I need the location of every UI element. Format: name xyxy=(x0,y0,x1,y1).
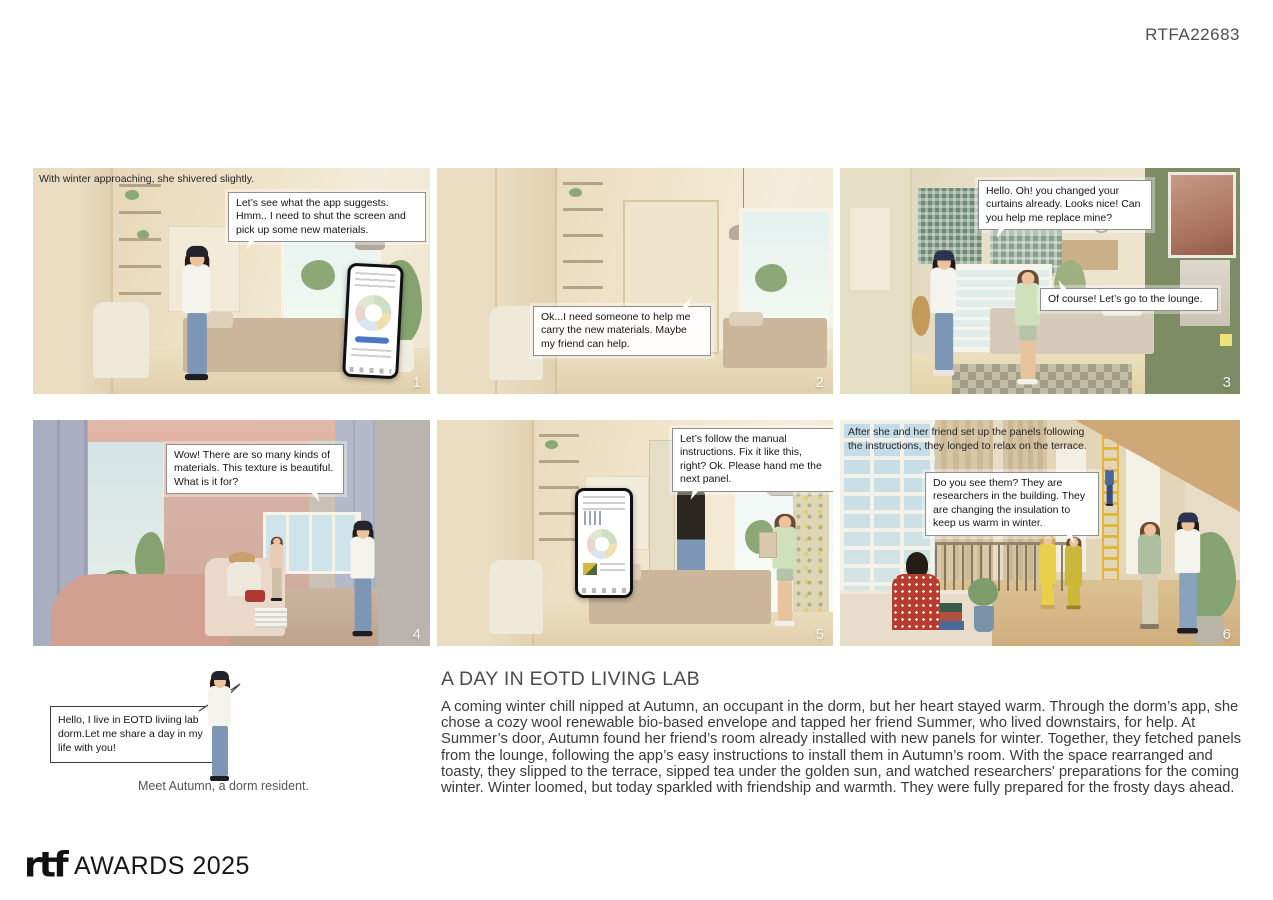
figure-cap xyxy=(211,671,229,680)
figure-cap xyxy=(1178,513,1198,523)
figure-head xyxy=(273,538,280,545)
figure-legs xyxy=(272,568,282,598)
wall-texture-panel xyxy=(850,208,890,290)
comic-panel-3: Hello. Oh! you changed your curtains alr… xyxy=(840,168,1240,394)
poster-photo xyxy=(1168,172,1236,258)
person-figure-autumn xyxy=(350,526,374,636)
panel-number: 6 xyxy=(1223,626,1231,643)
figure-shoes xyxy=(1040,605,1054,609)
story-title: A DAY IN EOTD LIVING LAB xyxy=(441,668,700,691)
person-green-top xyxy=(1138,524,1161,629)
concrete-wall-right xyxy=(375,420,430,646)
figure-cap xyxy=(186,246,208,257)
app-text-lines xyxy=(600,563,625,575)
panel-caption: After she and her friend set up the pane… xyxy=(848,426,1100,454)
app-nav-bar xyxy=(349,367,391,374)
person-figure-autumn xyxy=(930,256,956,376)
figure-legs xyxy=(354,579,371,632)
comic-panel-4: Wow! There are so many kinds of material… xyxy=(33,420,430,646)
figure-torso xyxy=(1138,534,1161,574)
figure-head xyxy=(214,676,226,688)
researcher-on-ladder xyxy=(1105,466,1114,506)
window-plant xyxy=(301,260,335,290)
figure-torso xyxy=(1039,544,1056,585)
figure-head xyxy=(1021,272,1034,285)
phone-mockup xyxy=(342,263,404,380)
phone-mockup xyxy=(575,488,633,598)
app-text-lines xyxy=(355,272,396,290)
speech-bubble: Let’s see what the app suggests. Hmm.. I… xyxy=(228,192,426,242)
figure-torso xyxy=(270,544,284,568)
red-cushion xyxy=(245,590,265,602)
figure-head xyxy=(1144,524,1156,536)
panel-caption: With winter approaching, she shivered sl… xyxy=(39,173,309,187)
intro-figure-autumn xyxy=(208,676,231,781)
figure-torso xyxy=(182,264,210,313)
rtf-logo: rtf xyxy=(24,846,66,885)
sticky-note xyxy=(1220,334,1232,346)
shelf-unit xyxy=(539,434,579,554)
figure-shoes xyxy=(1066,606,1080,610)
window-plant xyxy=(755,264,787,292)
plaid-woman-body xyxy=(892,574,940,630)
person-figure-autumn xyxy=(182,252,210,380)
panel-number: 4 xyxy=(413,626,421,643)
pillow xyxy=(729,312,763,326)
figure-head xyxy=(1107,466,1112,471)
figure-torso xyxy=(930,267,956,313)
figure-bare-legs xyxy=(777,581,792,621)
app-material-wheel xyxy=(587,529,617,559)
person-yellow-dress xyxy=(1039,536,1056,609)
figure-shoes xyxy=(775,621,795,626)
figure-legs xyxy=(1179,573,1197,628)
book-stack xyxy=(255,608,287,628)
shelf-plant xyxy=(545,440,558,449)
app-button xyxy=(355,336,389,344)
figure-head xyxy=(937,256,951,270)
figure-bare-legs xyxy=(1020,340,1035,379)
figure-shoes xyxy=(353,631,373,636)
person-figure-autumn xyxy=(1175,518,1200,634)
figure-cap xyxy=(353,521,372,530)
app-manual-diagram xyxy=(584,511,602,525)
chair xyxy=(93,302,149,378)
figure-torso xyxy=(1015,283,1040,326)
panel-number: 3 xyxy=(1223,374,1231,391)
window xyxy=(739,208,833,328)
figure-cap xyxy=(933,250,954,260)
figure-torso xyxy=(350,537,374,579)
shelf-unit xyxy=(119,184,161,306)
panel-number: 1 xyxy=(413,374,421,391)
app-text-lines xyxy=(351,348,391,360)
figure-legs xyxy=(934,313,952,370)
person-figure-background xyxy=(270,538,284,601)
speech-bubble: Let’s follow the manual instructions. Fi… xyxy=(672,428,833,492)
app-nav-bar xyxy=(582,588,626,593)
checkered-rug xyxy=(952,364,1132,394)
shelf-plant xyxy=(569,188,582,197)
figure-legs xyxy=(1142,574,1158,624)
figure-shoes xyxy=(933,370,955,376)
figure-legs xyxy=(1068,586,1080,606)
figure-head xyxy=(1181,518,1194,531)
speech-bubble: Do you see them? They are researchers in… xyxy=(925,472,1099,536)
figure-shoes xyxy=(1140,624,1159,629)
carried-panel xyxy=(759,532,777,558)
speech-bubble: Wow! There are so many kinds of material… xyxy=(166,444,344,494)
guitar xyxy=(912,296,930,336)
speech-bubble-reply: Of course! Let’s go to the lounge. xyxy=(1040,288,1218,311)
figure-head xyxy=(1043,536,1052,545)
project-code: RTFA22683 xyxy=(1145,25,1240,45)
figure-torso xyxy=(208,686,231,726)
figure-legs xyxy=(1106,485,1112,504)
phone-screen xyxy=(345,266,401,376)
chair xyxy=(489,560,543,634)
comic-panel-1: With winter approaching, she shivered sl… xyxy=(33,168,430,394)
comic-panel-6: After she and her friend set up the pane… xyxy=(840,420,1240,646)
figure-torso xyxy=(1065,546,1082,587)
intro-caption: Meet Autumn, a dorm resident. xyxy=(138,779,309,793)
speech-bubble: Ok...I need someone to help me carry the… xyxy=(533,306,711,356)
story-body: A coming winter chill nipped at Autumn, … xyxy=(441,699,1247,796)
figure-legs xyxy=(1019,326,1036,341)
comic-panel-2: Ok...I need someone to help me carry the… xyxy=(437,168,833,394)
figure-shoes xyxy=(1177,628,1198,634)
figure-shoes xyxy=(185,374,208,380)
figure-shoes xyxy=(210,776,229,781)
panel-number: 2 xyxy=(816,374,824,391)
app-card-thumb xyxy=(583,563,597,575)
figure-shoes xyxy=(271,598,282,601)
intro-speech-bubble: Hello, I live in EOTD liviing lab dorm.L… xyxy=(50,706,214,763)
figure-legs xyxy=(1042,584,1054,605)
speech-bubble: Hello. Oh! you changed your curtains alr… xyxy=(978,180,1152,230)
table-plant xyxy=(968,578,998,606)
shelf-unit xyxy=(563,182,603,300)
figure-head xyxy=(356,526,369,539)
awards-label: AWARDS 2025 xyxy=(74,852,250,881)
figure-torso xyxy=(1175,529,1200,573)
shelf-plant xyxy=(125,190,139,200)
phone-screen xyxy=(578,491,630,595)
panel-number: 5 xyxy=(816,626,824,643)
figure-shoes xyxy=(1106,504,1113,506)
figure-head xyxy=(778,516,791,529)
presentation-board: RTFA22683 Wi xyxy=(0,0,1273,900)
comic-panel-5: Let’s follow the manual instructions. Fi… xyxy=(437,420,833,646)
figure-legs xyxy=(212,726,228,776)
table-plant-pot xyxy=(974,606,994,632)
figure-head xyxy=(189,252,204,267)
person-figure-summer xyxy=(1015,272,1040,384)
figure-legs xyxy=(776,569,793,582)
sofa xyxy=(51,574,229,646)
shelf-plant xyxy=(137,230,149,239)
person-yellow-dress xyxy=(1065,538,1082,609)
app-text-lines xyxy=(583,496,625,510)
figure-shoes xyxy=(1017,379,1037,384)
figure-legs xyxy=(187,313,207,374)
figure-torso xyxy=(1105,470,1114,485)
app-material-wheel xyxy=(355,294,393,332)
